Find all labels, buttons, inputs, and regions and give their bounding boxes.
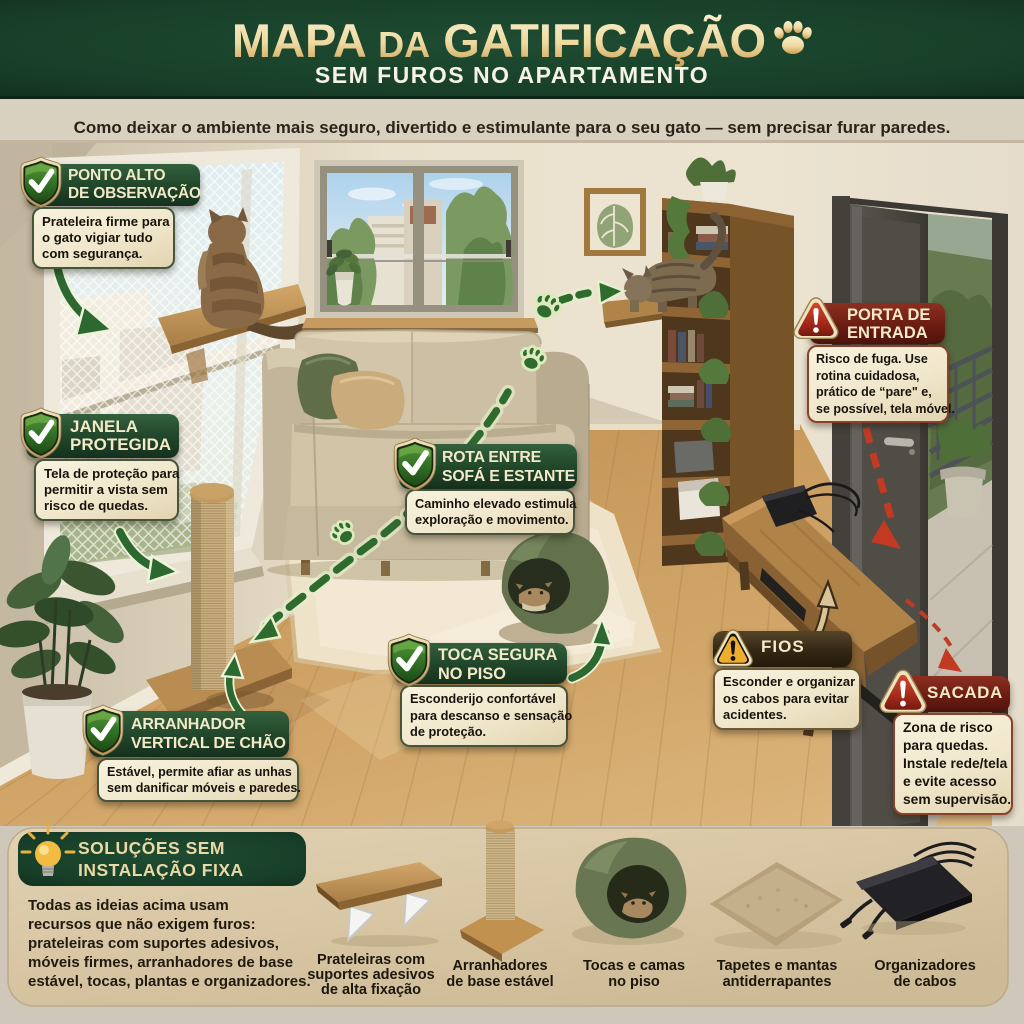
- svg-text:no piso: no piso: [608, 974, 660, 990]
- svg-text:Como deixar o ambiente mais se: Como deixar o ambiente mais seguro, dive…: [74, 118, 951, 137]
- svg-text:antiderrapantes: antiderrapantes: [723, 974, 832, 990]
- svg-text:de base estável: de base estável: [446, 974, 553, 990]
- svg-text:Tapetes e mantas: Tapetes e mantas: [717, 958, 838, 974]
- svg-text:Todas as ideias acima usam: Todas as ideias acima usam: [28, 897, 229, 914]
- svg-text:estável, tocas, plantas e orga: estável, tocas, plantas e organizadores.: [28, 973, 311, 990]
- svg-text:de alta fixação: de alta fixação: [321, 982, 421, 998]
- svg-text:Tocas e camas: Tocas e camas: [583, 958, 685, 974]
- svg-text:prateleiras com suportes adesi: prateleiras com suportes adesivos,: [28, 935, 279, 952]
- svg-text:Organizadores: Organizadores: [874, 958, 976, 974]
- svg-text:MAPA DA GATIFICAÇÃO: MAPA DA GATIFICAÇÃO: [232, 14, 766, 67]
- svg-text:SEM FUROS NO APARTAMENTO: SEM FUROS NO APARTAMENTO: [315, 62, 709, 88]
- svg-text:SOLUÇÕES SEM: SOLUÇÕES SEM: [78, 837, 225, 858]
- svg-text:Arranhadores: Arranhadores: [452, 958, 547, 974]
- svg-text:de cabos: de cabos: [894, 974, 957, 990]
- svg-text:móveis firmes, arranhadores de: móveis firmes, arranhadores de base: [28, 954, 293, 971]
- svg-text:INSTALAÇÃO FIXA: INSTALAÇÃO FIXA: [78, 859, 244, 880]
- svg-text:suportes adesivos: suportes adesivos: [307, 967, 434, 983]
- svg-text:recursos que não exigem furos:: recursos que não exigem furos:: [28, 916, 256, 933]
- svg-text:Prateleiras com: Prateleiras com: [317, 952, 425, 968]
